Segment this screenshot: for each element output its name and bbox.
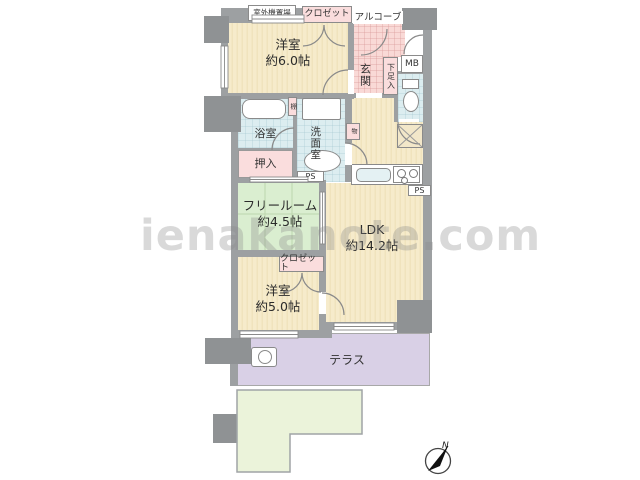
refrigerator-space-icon (397, 124, 423, 148)
ps-kitchen-label: PS (408, 185, 431, 196)
closet-top-label: クロゼット (302, 6, 352, 23)
compass-north-label: N (442, 441, 449, 451)
outdoor-unit-label: 室外機置場 (248, 5, 296, 21)
stove-icon (393, 166, 420, 183)
bedroom-6-label: 洋室 約6.0帖 (238, 37, 338, 70)
pillar-top-left (204, 16, 229, 43)
wall-bedroom6-right (348, 23, 354, 99)
closet-bottom-label: クロゼット (279, 256, 324, 272)
toilet-icon (403, 91, 419, 112)
bedroom-6-name: 洋室 (238, 37, 338, 53)
toilet-tank-icon (402, 79, 419, 89)
room-alcove (352, 23, 405, 57)
bedroom-5-name: 洋室 (228, 283, 328, 299)
free-room-name: フリールーム (230, 198, 330, 214)
ldk-name: LDK (322, 222, 422, 238)
shelf-label: 棚 (288, 97, 297, 116)
bathroom-label: 浴室 (240, 126, 291, 140)
pillar-garden (213, 414, 244, 443)
pillar-mid-left (204, 96, 241, 132)
washroom-label: 洗面室 (307, 112, 323, 174)
garden-label: 専用庭 (267, 402, 327, 418)
ldk-label: LDK 約14.2帖 (322, 222, 422, 255)
oshiire-label: 押入 (240, 156, 291, 171)
meter-box-label: MB (401, 55, 423, 73)
pillar-bottom-left (205, 338, 251, 364)
bathtub-icon (242, 99, 286, 119)
floorplan-canvas: 室外機置場 クロゼット アルコーブ MB 下足入 玄関 棚 物 押入 PS PS… (0, 0, 640, 480)
wall-right (423, 22, 432, 333)
free-room-label: フリールーム 約4.5帖 (230, 198, 330, 231)
wall-bedroom5-bottom (231, 330, 332, 338)
bedroom-6-area: 約6.0帖 (238, 53, 338, 69)
entrance-label: 玄関 (358, 60, 372, 90)
bedroom-5-area: 約5.0帖 (228, 299, 328, 315)
compass-icon: N (426, 441, 451, 474)
free-room-area: 約4.5帖 (230, 214, 330, 230)
small-storage-label: 物 (346, 123, 360, 140)
faucet-pan-icon (258, 350, 272, 364)
bedroom-5-label: 洋室 約5.0帖 (228, 283, 328, 316)
terrace-label: テラス (317, 352, 377, 368)
kitchen-sink-icon (356, 168, 391, 182)
shoe-cabinet-label: 下足入 (383, 57, 398, 95)
alcove-label: アルコーブ (353, 11, 403, 24)
pillar-bottom-right (397, 300, 432, 333)
pillar-top-right (402, 8, 437, 30)
ldk-area: 約14.2帖 (322, 238, 422, 254)
